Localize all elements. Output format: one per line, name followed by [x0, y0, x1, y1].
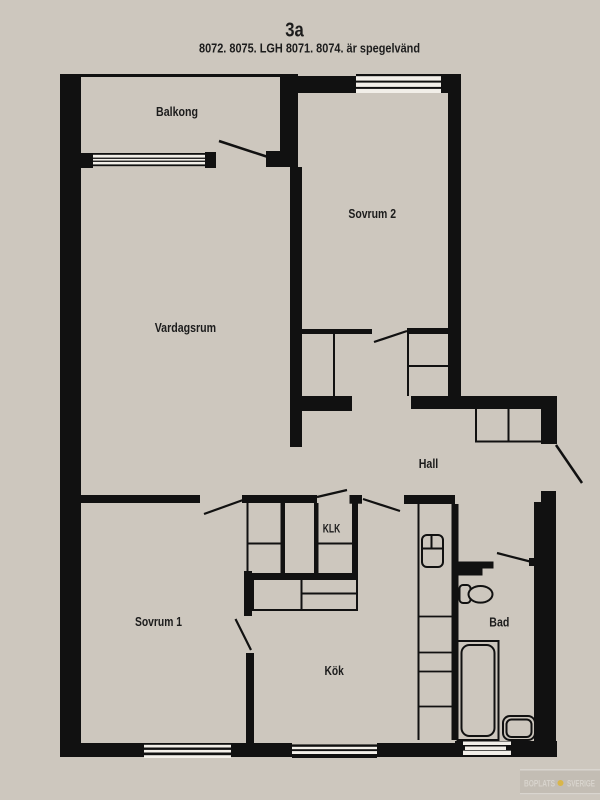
- svg-text:Balkong: Balkong: [156, 105, 198, 119]
- svg-text:Bad: Bad: [489, 616, 509, 630]
- svg-text:KLK: KLK: [323, 522, 341, 536]
- svg-text:BOPLATS: BOPLATS: [524, 779, 555, 789]
- svg-text:8072. 8075. LGH 8071. 8074. är: 8072. 8075. LGH 8071. 8074. är spegelvän…: [199, 41, 420, 56]
- svg-text:3a: 3a: [285, 20, 304, 42]
- svg-text:Vardagsrum: Vardagsrum: [155, 321, 216, 335]
- svg-text:SVERIGE: SVERIGE: [567, 779, 595, 789]
- svg-text:Hall: Hall: [419, 456, 439, 471]
- svg-text:Sovrum 1: Sovrum 1: [135, 615, 182, 629]
- svg-text:Kök: Kök: [325, 664, 344, 678]
- svg-text:Sovrum 2: Sovrum 2: [348, 207, 396, 221]
